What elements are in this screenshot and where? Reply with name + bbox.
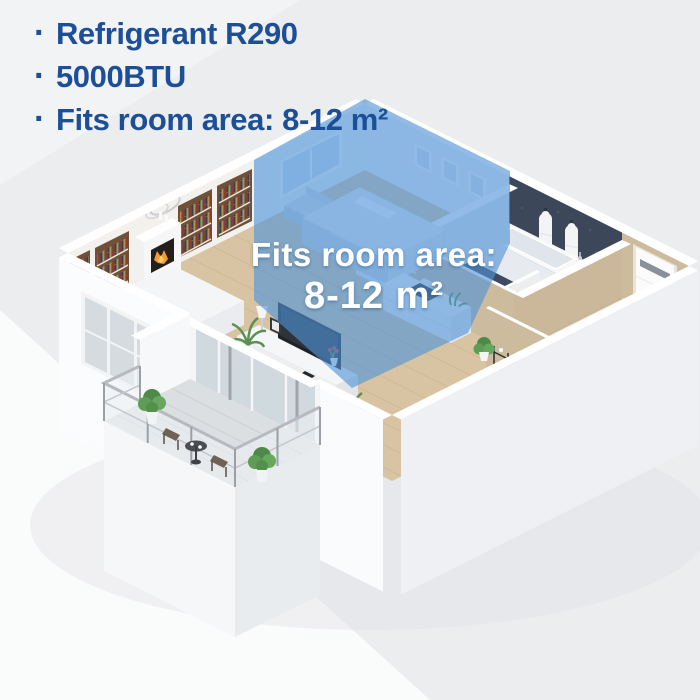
feature-btu: · 5000BTU (34, 59, 388, 102)
feature-refrigerant-label: Refrigerant R290 (56, 16, 298, 52)
feature-room-area-label: Fits room area: 8-12 m² (56, 102, 388, 138)
bullet-icon: · (34, 59, 45, 93)
bullet-icon: · (34, 16, 45, 50)
product-infographic: · Refrigerant R290 · 5000BTU · Fits room… (0, 0, 700, 700)
faucet (578, 256, 582, 260)
feature-refrigerant: · Refrigerant R290 (34, 16, 388, 59)
overlay-caption-line1: Fits room area: (251, 236, 497, 273)
bullet-icon: · (34, 102, 45, 136)
feature-room-area: · Fits room area: 8-12 m² (34, 102, 388, 145)
feature-list: · Refrigerant R290 · 5000BTU · Fits room… (34, 16, 388, 145)
feature-btu-label: 5000BTU (56, 59, 186, 95)
overlay-caption-line2: 8-12 m² (304, 275, 444, 317)
